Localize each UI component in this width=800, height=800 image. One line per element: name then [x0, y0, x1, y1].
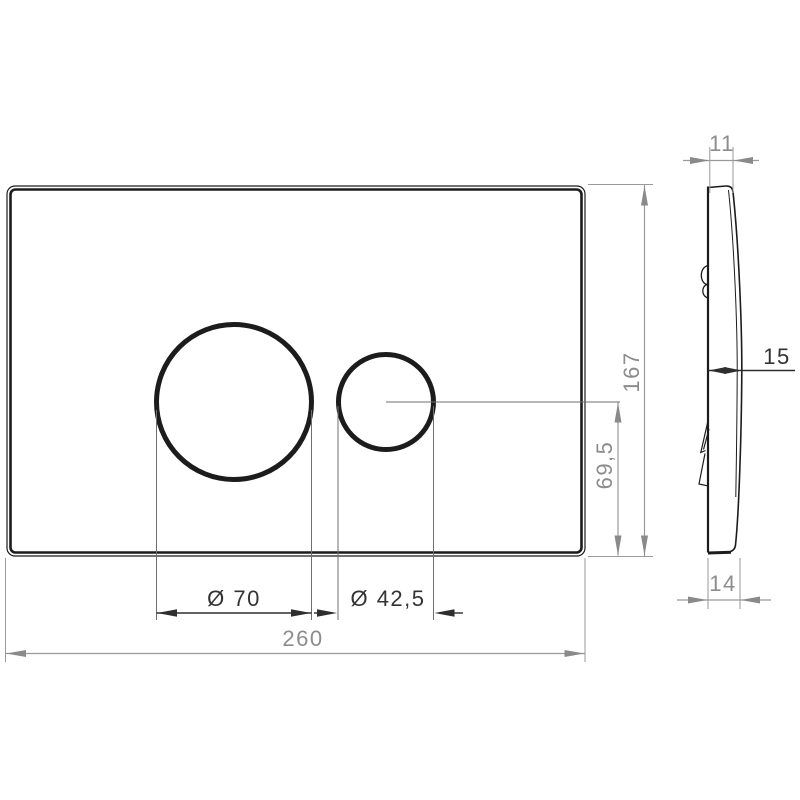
- dimension-button-center-height: 69,5: [592, 403, 622, 556]
- side-top-edge: [708, 186, 733, 192]
- arrowhead-down-icon: [641, 536, 648, 556]
- side-bottom-thickness-label: 14: [709, 571, 736, 596]
- arrowhead-up-icon: [641, 186, 648, 206]
- side-bottom-edge: [708, 552, 731, 553]
- arrowhead-up-icon: [615, 403, 622, 423]
- large-flush-button-circle: [157, 325, 312, 480]
- arrowhead-left-icon: [6, 650, 26, 657]
- plate-outer-edge: [7, 186, 585, 556]
- arrowhead-left-icon: [317, 609, 337, 616]
- front-view: [7, 186, 620, 556]
- plate-width-label: 260: [282, 626, 323, 651]
- dimension-side-bottom-thickness: 14: [677, 558, 771, 609]
- arrowhead-right-icon: [688, 597, 708, 604]
- arrowhead-right-icon: [565, 650, 585, 657]
- large-diameter-label: Ø 70: [207, 586, 261, 611]
- button-center-height-label: 69,5: [592, 441, 617, 490]
- dimension-large-diameter: Ø 70: [157, 410, 312, 620]
- dimension-side-mid-thickness: 15: [709, 344, 796, 374]
- flush-plate-technical-drawing: Ø 70 Ø 42,5 260 167 69,5: [0, 0, 800, 800]
- arrowhead-left-icon: [157, 609, 177, 616]
- side-front-inner-curve: [729, 190, 738, 497]
- dimension-small-diameter: Ø 42,5: [314, 406, 463, 620]
- side-top-thickness-label: 11: [709, 131, 735, 156]
- dimension-plate-height: 167: [588, 185, 653, 557]
- arrowhead-right-icon: [291, 609, 311, 616]
- arrowhead-right-icon: [690, 157, 710, 164]
- arrowhead-left-icon: [741, 597, 761, 604]
- small-diameter-label: Ø 42,5: [350, 586, 425, 611]
- plate-front-face-outline: [11, 190, 582, 553]
- dimension-side-top-thickness: 11: [683, 131, 759, 193]
- dimension-plate-width: 260: [6, 558, 586, 662]
- arrowhead-left-icon: [709, 367, 727, 374]
- arrowhead-right-icon: [724, 367, 742, 374]
- side-mid-thickness-label: 15: [763, 344, 790, 369]
- drawing-canvas: Ø 70 Ø 42,5 260 167 69,5: [0, 0, 800, 800]
- arrowhead-right-icon: [435, 609, 455, 616]
- plate-height-label: 167: [619, 351, 644, 392]
- arrowhead-down-icon: [615, 536, 622, 556]
- arrowhead-left-icon: [734, 157, 754, 164]
